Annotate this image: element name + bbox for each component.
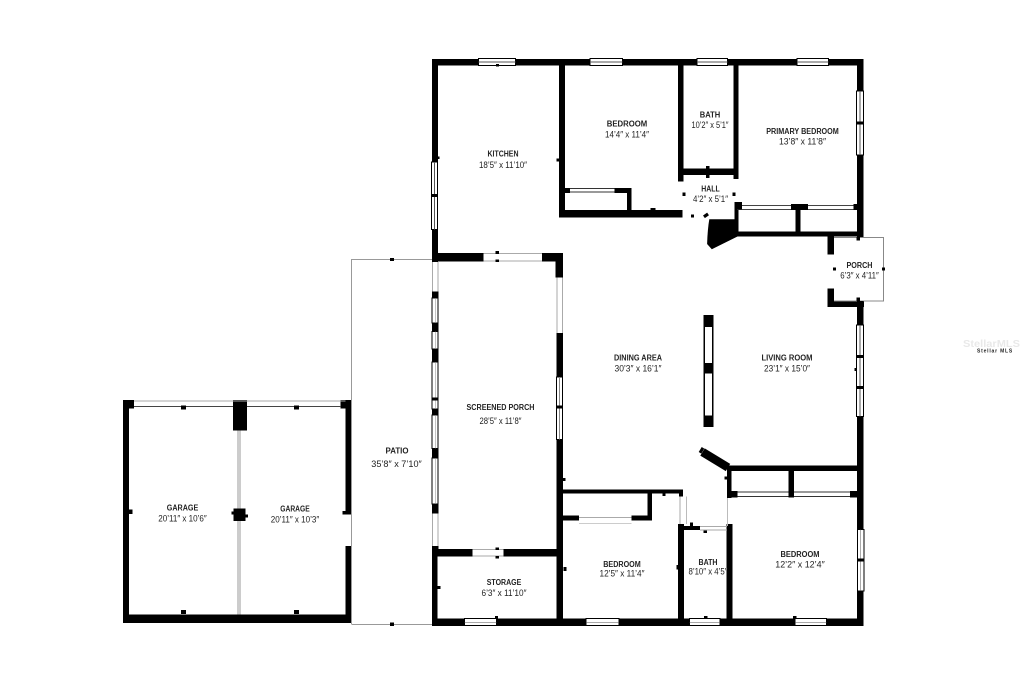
svg-text:HALL: HALL [701, 184, 720, 194]
svg-text:GARAGE: GARAGE [167, 503, 199, 513]
svg-text:STORAGE: STORAGE [487, 577, 522, 587]
svg-text:20’11″ x 10’3″: 20’11″ x 10’3″ [271, 515, 320, 525]
svg-text:18’5″ x 11’10″: 18’5″ x 11’10″ [479, 160, 528, 170]
svg-text:SCREENED PORCH: SCREENED PORCH [467, 402, 535, 412]
svg-text:23’1″ x 15’0″: 23’1″ x 15’0″ [764, 364, 811, 374]
svg-text:PRIMARY BEDROOM: PRIMARY BEDROOM [766, 126, 839, 136]
svg-text:12’5″ x 11’4″: 12’5″ x 11’4″ [600, 569, 646, 579]
svg-text:KITCHEN: KITCHEN [488, 149, 519, 159]
svg-text:13’8″ x 11’8″: 13’8″ x 11’8″ [779, 137, 827, 147]
svg-text:BATH: BATH [699, 557, 718, 567]
svg-text:8’10″ x 4’5″: 8’10″ x 4’5″ [689, 567, 729, 577]
svg-text:30’3″ x 16’1″: 30’3″ x 16’1″ [615, 364, 663, 374]
svg-text:35’8″ x 7’10″: 35’8″ x 7’10″ [371, 459, 422, 469]
svg-text:BEDROOM: BEDROOM [607, 119, 648, 129]
svg-text:6’3″ x 4’11″: 6’3″ x 4’11″ [840, 271, 879, 281]
svg-text:Stellar MLS: Stellar MLS [977, 349, 1013, 355]
svg-text:LIVING ROOM: LIVING ROOM [762, 353, 813, 363]
svg-text:10’2″ x 5’1″: 10’2″ x 5’1″ [692, 120, 730, 130]
svg-text:4’2″ x 5’1″: 4’2″ x 5’1″ [693, 194, 729, 204]
svg-text:6’3″ x 11’10″: 6’3″ x 11’10″ [482, 588, 528, 598]
svg-text:DINING AREA: DINING AREA [614, 353, 662, 363]
svg-text:BEDROOM: BEDROOM [603, 559, 641, 569]
svg-text:14’4″ x 11’4″: 14’4″ x 11’4″ [605, 130, 650, 140]
svg-text:28’5″ x 11’8″: 28’5″ x 11’8″ [480, 416, 523, 426]
svg-text:BATH: BATH [700, 110, 721, 120]
svg-text:12’2″ x 12’4″: 12’2″ x 12’4″ [775, 560, 825, 570]
svg-text:PATIO: PATIO [386, 446, 409, 456]
svg-text:20’11″ x 10’6″: 20’11″ x 10’6″ [158, 514, 207, 524]
svg-text:GARAGE: GARAGE [280, 504, 310, 514]
svg-text:PORCH: PORCH [847, 260, 873, 270]
svg-text:BEDROOM: BEDROOM [781, 549, 820, 559]
